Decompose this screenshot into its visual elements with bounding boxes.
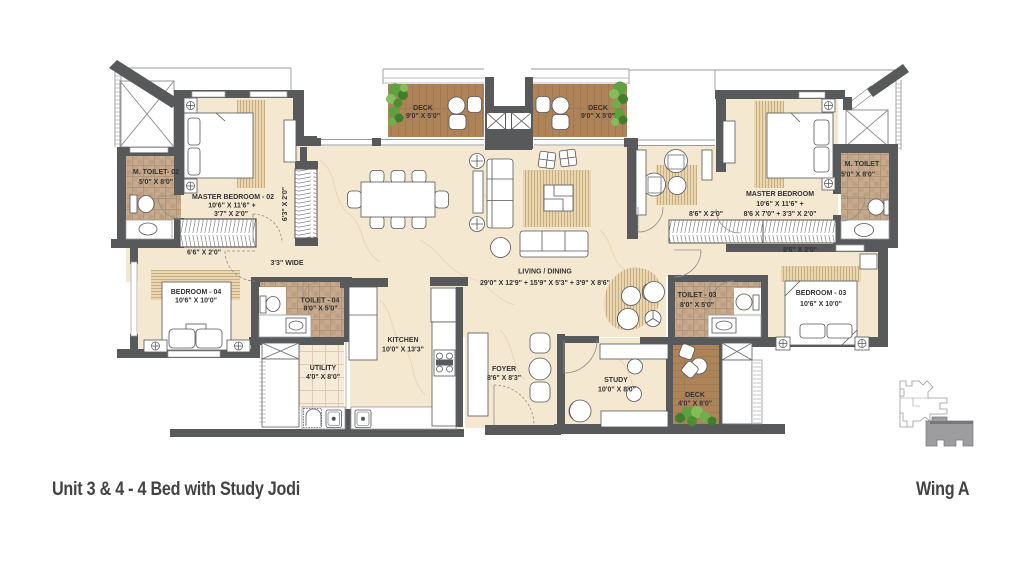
svg-text:9'0" X 5'0": 9'0" X 5'0" bbox=[406, 113, 440, 120]
svg-text:6'3" X 2'0": 6'3" X 2'0" bbox=[282, 187, 289, 221]
svg-text:8'0" X 5'0": 8'0" X 5'0" bbox=[680, 302, 714, 309]
svg-text:9'0" X 5'0": 9'0" X 5'0" bbox=[581, 113, 615, 120]
svg-text:M. TOILET- 02: M. TOILET- 02 bbox=[133, 169, 179, 176]
svg-text:3'3" WIDE: 3'3" WIDE bbox=[271, 260, 304, 267]
svg-text:FOYER: FOYER bbox=[492, 366, 516, 373]
svg-text:6'6" X 2'0": 6'6" X 2'0" bbox=[187, 250, 221, 257]
svg-text:DECK: DECK bbox=[413, 105, 433, 112]
svg-text:M. TOILET: M. TOILET bbox=[845, 161, 880, 168]
svg-text:8'6" X 8'3": 8'6" X 8'3" bbox=[487, 375, 521, 382]
svg-text:4'0" X 8'0": 4'0" X 8'0" bbox=[678, 401, 712, 408]
svg-text:BEDROOM - 04: BEDROOM - 04 bbox=[171, 289, 222, 296]
svg-text:DECK: DECK bbox=[588, 105, 608, 112]
svg-text:8'6" X 2'0": 8'6" X 2'0" bbox=[783, 247, 817, 254]
svg-text:8'0" X 5'0": 8'0" X 5'0" bbox=[303, 306, 337, 313]
svg-text:29'0" X 12'9" + 15'9" X 5'3" +: 29'0" X 12'9" + 15'9" X 5'3" + 3'9" X 8'… bbox=[480, 280, 610, 287]
svg-text:MASTER BEDROOM - 02: MASTER BEDROOM - 02 bbox=[192, 194, 274, 201]
svg-text:LIVING / DINING: LIVING / DINING bbox=[518, 269, 572, 276]
svg-text:STUDY: STUDY bbox=[604, 377, 628, 384]
svg-text:8'6" X 2'0": 8'6" X 2'0" bbox=[689, 211, 723, 218]
svg-text:KITCHEN: KITCHEN bbox=[387, 337, 418, 344]
svg-text:TOILET - 03: TOILET - 03 bbox=[678, 292, 717, 299]
svg-text:10'6" X 10'0": 10'6" X 10'0" bbox=[175, 298, 217, 305]
svg-text:10'6" X 11'6" +: 10'6" X 11'6" + bbox=[208, 203, 256, 210]
svg-text:MASTER BEDROOM: MASTER BEDROOM bbox=[746, 191, 814, 198]
svg-text:BEDROOM - 03: BEDROOM - 03 bbox=[796, 290, 847, 297]
svg-text:DECK: DECK bbox=[685, 392, 705, 399]
svg-text:5'0" X 8'0": 5'0" X 8'0" bbox=[841, 172, 875, 179]
svg-text:10'0" X 13'3": 10'0" X 13'3" bbox=[382, 347, 424, 354]
svg-text:8'6 X 7'0" + 3'3" X 2'0": 8'6 X 7'0" + 3'3" X 2'0" bbox=[744, 211, 817, 218]
svg-text:5'0" X 8'0": 5'0" X 8'0" bbox=[139, 179, 173, 186]
svg-text:UTILITY: UTILITY bbox=[310, 365, 337, 372]
svg-text:10'6" X 10'0": 10'6" X 10'0" bbox=[800, 301, 842, 308]
svg-text:10'0" X 8'0": 10'0" X 8'0" bbox=[598, 387, 636, 394]
svg-text:10'6" X 11'6" +: 10'6" X 11'6" + bbox=[756, 201, 804, 208]
svg-text:4'0" X 8'0": 4'0" X 8'0" bbox=[306, 374, 340, 381]
svg-text:3'7" X 2'0": 3'7" X 2'0" bbox=[214, 211, 248, 218]
svg-text:TOILET - 04: TOILET - 04 bbox=[301, 298, 340, 305]
